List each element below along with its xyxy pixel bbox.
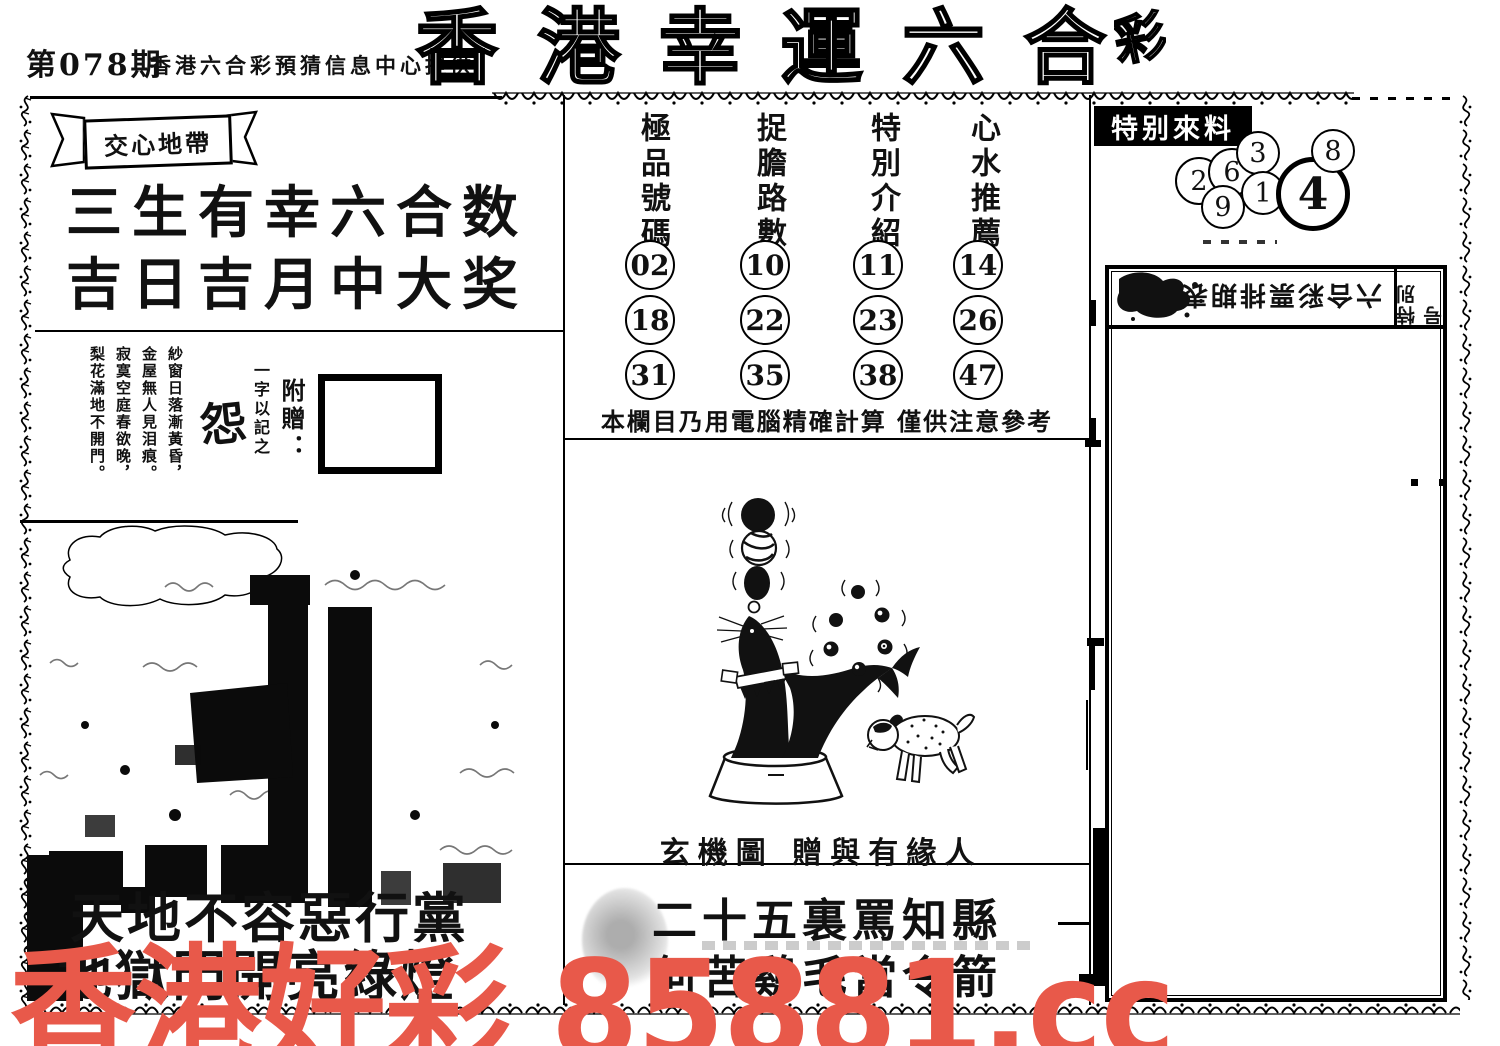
- number-ball: 35: [740, 350, 790, 400]
- number-ball: 14: [953, 240, 1003, 290]
- lottery-tip-sheet: 第078期 香港六合彩預猜信息中心提供 香港幸運六合 彩: [0, 0, 1500, 1046]
- column-title-special-intro: 特別介紹: [860, 112, 904, 252]
- ribbon-left-wing: [50, 112, 86, 170]
- column-title-bold-path: 捉膽路數: [746, 112, 790, 252]
- figure-caption: 玄機圖 贈與有緣人: [566, 828, 1076, 872]
- number-ball: 31: [625, 350, 675, 400]
- column-title-premium: 極品號碼: [630, 112, 674, 252]
- number-ball: 18: [625, 295, 675, 345]
- poem-line: 紗窗日落漸黃昏，: [162, 346, 188, 498]
- ink-blob: [1113, 271, 1205, 323]
- poem: 紗窗日落漸黃昏， 金屋無人見泪痕。 寂寞空庭春欲晚， 梨花滿地不開門。: [84, 346, 188, 498]
- tips-bottom-border: [565, 438, 1089, 440]
- issue-number: 第078期: [26, 40, 164, 84]
- line-fragment: [1087, 638, 1104, 646]
- line-fragment: [1091, 646, 1095, 690]
- poem-line: 金屋無人見泪痕。: [136, 346, 162, 498]
- divider-middle-right: [1089, 95, 1091, 1005]
- number-ball: 38: [853, 350, 903, 400]
- masthead-title: 香港幸運六合: [408, 2, 1120, 98]
- special-ball: 3: [1236, 131, 1280, 175]
- number-ball: 02: [625, 240, 675, 290]
- special-ball: 8: [1311, 129, 1355, 173]
- poem-note: 一字以記之: [248, 362, 272, 457]
- top-scallop-border: [492, 88, 1354, 108]
- masthead-title-partial: 彩: [1114, 8, 1166, 68]
- number-ball: 23: [853, 295, 903, 345]
- number-ball: 22: [740, 295, 790, 345]
- slogan-line-1: 三生有幸六合数: [66, 168, 546, 249]
- poem-keyword: 怨: [197, 386, 250, 456]
- top-right-dash-border: [1352, 97, 1454, 100]
- left-box-top-border: [30, 96, 502, 99]
- right-lace-border: [1452, 95, 1478, 1000]
- seal-circus-illustration: [640, 468, 1060, 816]
- schedule-side-cell: 特別号: [1394, 269, 1443, 325]
- line-fragment: [1091, 418, 1096, 442]
- gift-label: 附贈：: [274, 378, 309, 462]
- schedule-side-label: 特別号: [1393, 269, 1447, 325]
- number-ball: 26: [953, 295, 1003, 345]
- poem-line: 寂寞空庭春欲晚，: [110, 346, 136, 498]
- number-ball: 47: [953, 350, 1003, 400]
- table-dot: [1411, 479, 1418, 486]
- number-ball: 10: [740, 240, 790, 290]
- svg-text:彩: 彩: [1114, 8, 1166, 68]
- ribbon-banner: 交心地帶: [83, 114, 233, 169]
- masthead-title-text: 香港幸運六合: [416, 2, 1106, 96]
- dash-marks: [1203, 240, 1277, 244]
- left-box-divider: [35, 330, 563, 332]
- special-ball: 9: [1201, 185, 1245, 229]
- line-fragment: [1090, 300, 1096, 326]
- special-info-label: 特别來料: [1094, 106, 1252, 146]
- schedule-table-inner-border: [1111, 271, 1441, 996]
- poem-line: 梨花滿地不開門。: [84, 346, 110, 498]
- table-dot: [1439, 479, 1446, 486]
- number-ball: 11: [853, 240, 903, 290]
- schedule-table: 六合彩票排期表 特別号: [1105, 265, 1447, 1002]
- column-title-favorite: 心水推薦: [960, 112, 1004, 252]
- gift-blank-box: [318, 374, 442, 474]
- slogan-line-2: 吉日吉月中大奖: [66, 240, 546, 321]
- line-fragment: [1086, 700, 1088, 770]
- computer-note: 本欄目乃用電腦精確計算 僅供注意參考: [566, 402, 1088, 437]
- site-watermark: 香港好彩 85881.cc: [10, 900, 1174, 1046]
